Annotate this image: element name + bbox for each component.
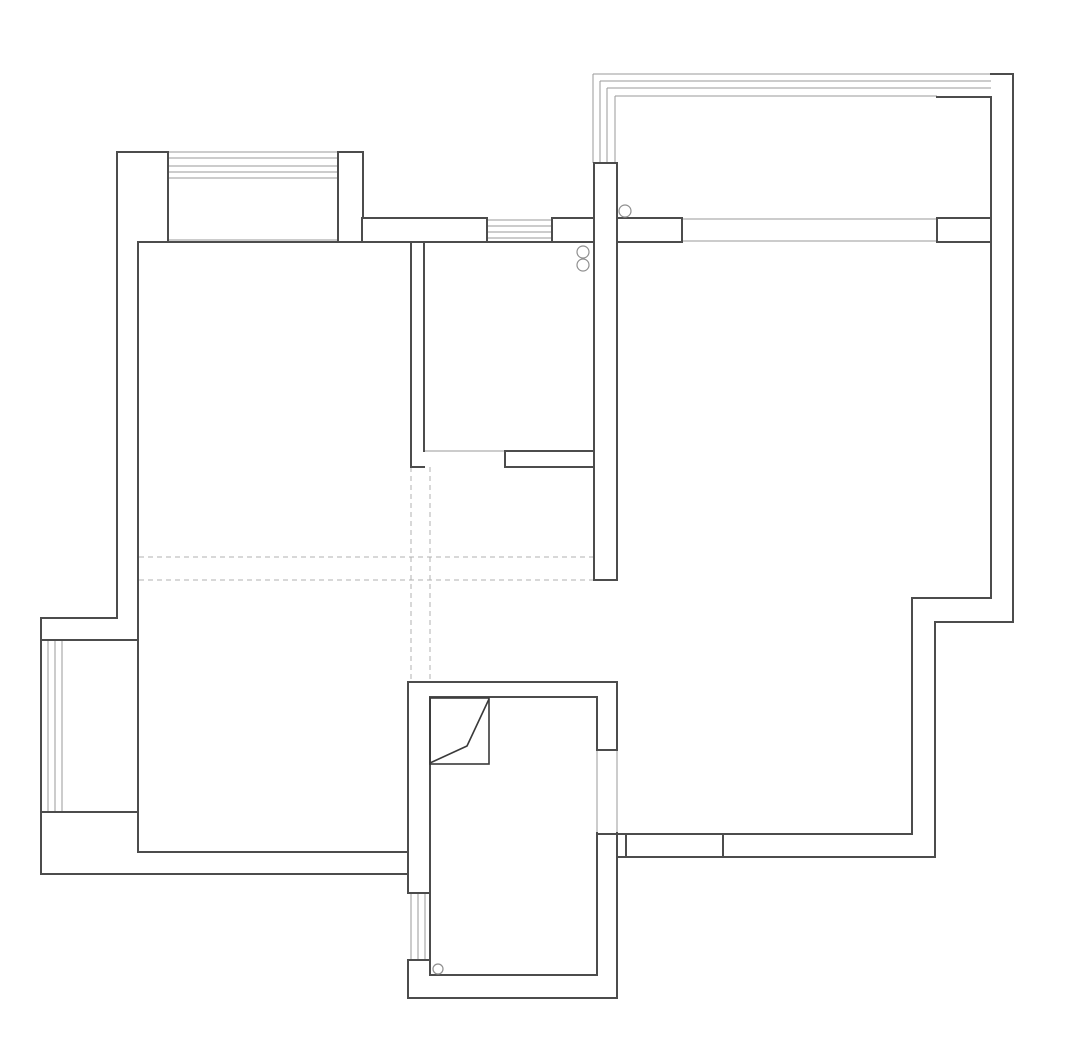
wall-block (552, 218, 594, 242)
beam-dashed-lines (139, 467, 594, 682)
wall-block (338, 152, 363, 242)
floor-plan-drawing (0, 0, 1080, 1058)
window-and-opening-lines (48, 74, 991, 960)
drain-pipe-circle (577, 259, 589, 271)
flue-duct-outline (430, 698, 489, 764)
drain-pipe-circle (619, 205, 631, 217)
pipe-symbols (433, 205, 631, 974)
flue-duct-symbol (430, 698, 489, 764)
drain-pipe-circle (433, 964, 443, 974)
drain-pipe-circle (577, 246, 589, 258)
wall-lines (41, 74, 1013, 998)
wall-block (362, 218, 487, 242)
wall-block (617, 218, 682, 242)
wall-block (505, 451, 594, 467)
flue-duct-diagonal (430, 699, 489, 763)
floor-plan-page (0, 0, 1080, 1058)
